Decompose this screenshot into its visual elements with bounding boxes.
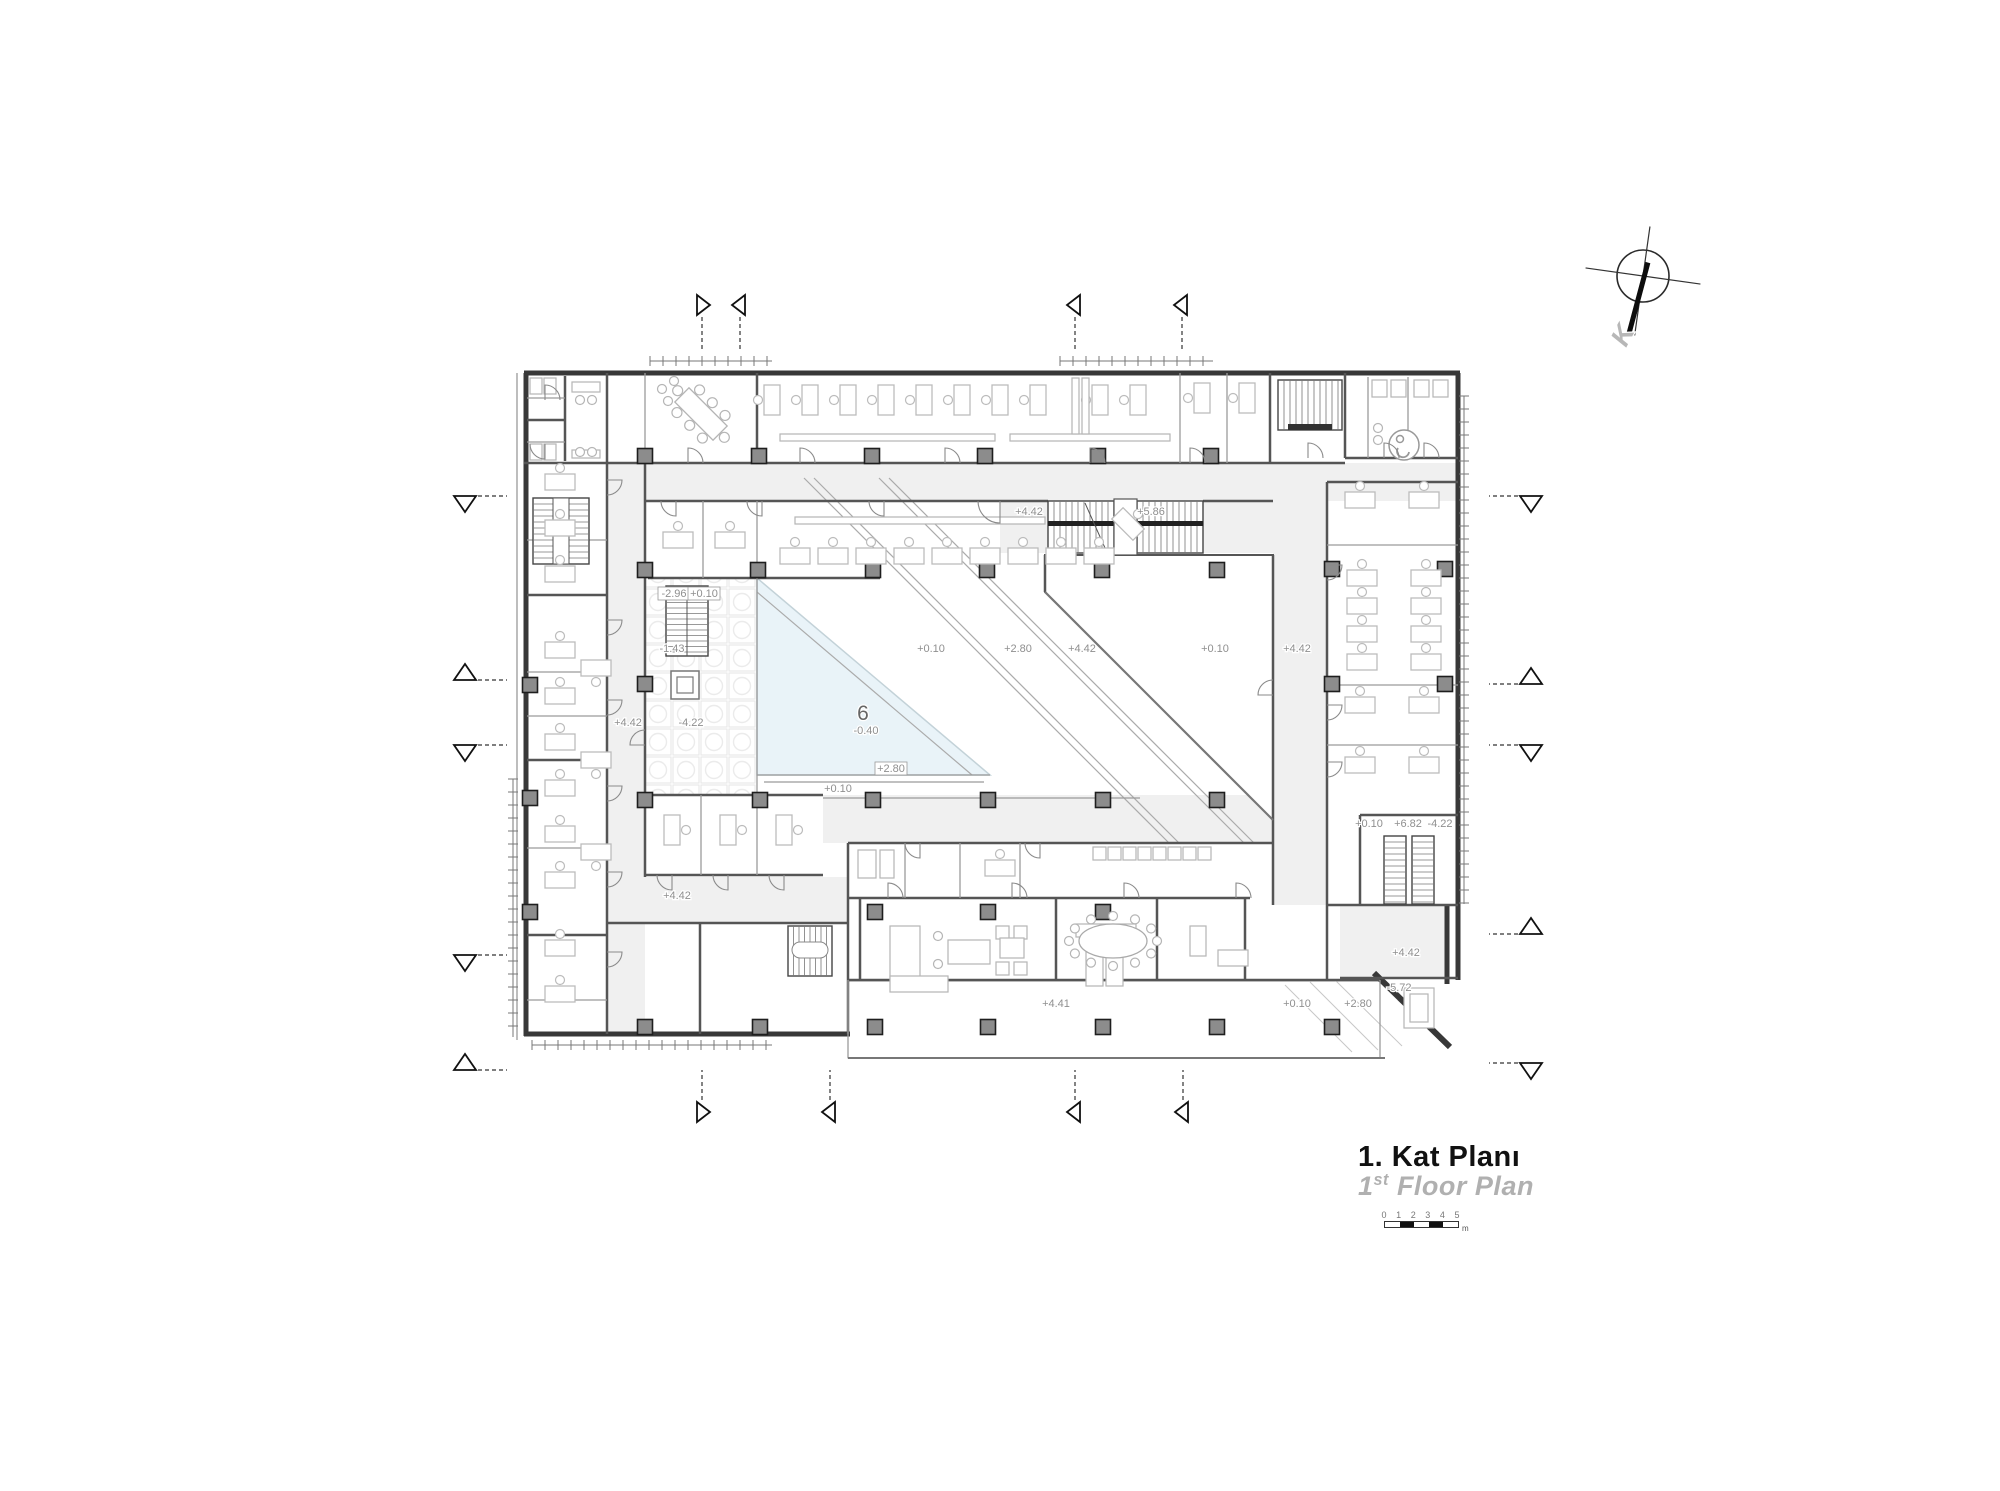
elevation-label: +2.80 — [877, 763, 905, 775]
plan-title-english: 1st Floor Plan — [1358, 1172, 1578, 1202]
scale-tick: 5 — [1455, 1210, 1460, 1220]
elevation-label: +0.10 — [917, 643, 945, 655]
room-number-text: 6 — [857, 702, 869, 725]
elevation-label: +4.41 — [1042, 998, 1070, 1010]
elevation-label: +0.10 — [824, 783, 852, 795]
north-arrow-crosshair — [1577, 218, 1707, 343]
elevation-label: -5.72 — [1386, 982, 1411, 994]
scale-tick: 0 — [1382, 1210, 1387, 1220]
scale-tick: 1 — [1396, 1210, 1401, 1220]
scale-bar-strip — [1384, 1221, 1459, 1228]
elevation-label: -1.43 — [659, 643, 684, 655]
elevation-label: +5.86 — [1137, 506, 1165, 518]
elevation-label: +6.82 — [1394, 818, 1422, 830]
elevation-label: +4.42 — [614, 717, 642, 729]
elevation-label: +4.42 — [663, 890, 691, 902]
elevation-label: +2.80 — [1344, 998, 1372, 1010]
elevation-label: -4.22 — [1427, 818, 1452, 830]
elevation-label: -4.22 — [678, 717, 703, 729]
scale-tick: 4 — [1440, 1210, 1445, 1220]
elevation-label: -2.96 — [661, 588, 686, 600]
elevation-label: +0.10 — [1283, 998, 1311, 1010]
scale-tick: 2 — [1411, 1210, 1416, 1220]
elevation-label: +0.10 — [1201, 643, 1229, 655]
elevation-label: +4.42 — [1015, 506, 1043, 518]
elevation-label: +0.10 — [1355, 818, 1383, 830]
floor-plan-page: -2.96+0.10-1.43-4.22+2.80+0.10+0.10+2.80… — [0, 0, 2000, 1491]
elevation-label: +4.42 — [1283, 643, 1311, 655]
atrium-triangle-void — [757, 578, 990, 775]
elevation-label: +4.42 — [1068, 643, 1096, 655]
north-arrow: K — [1577, 218, 1707, 350]
scale-segment — [1400, 1222, 1415, 1227]
scale-bar: m 012345 — [1384, 1210, 1474, 1232]
scale-segment — [1429, 1222, 1444, 1227]
elevation-label: +0.10 — [690, 588, 718, 600]
elevation-label: +4.42 — [1392, 947, 1420, 959]
room-number-level: -0.40 — [853, 725, 878, 737]
scale-bar-unit: m — [1462, 1224, 1469, 1233]
elevation-label: +2.80 — [1004, 643, 1032, 655]
plan-title-turkish: 1. Kat Planı — [1358, 1142, 1578, 1172]
floor-plan-drawing: -2.96+0.10-1.43-4.22+2.80+0.10+0.10+2.80… — [0, 0, 2000, 1491]
scale-tick: 3 — [1425, 1210, 1430, 1220]
title-block: 1. Kat Planı 1st Floor Plan m 012345 — [1358, 1142, 1578, 1232]
